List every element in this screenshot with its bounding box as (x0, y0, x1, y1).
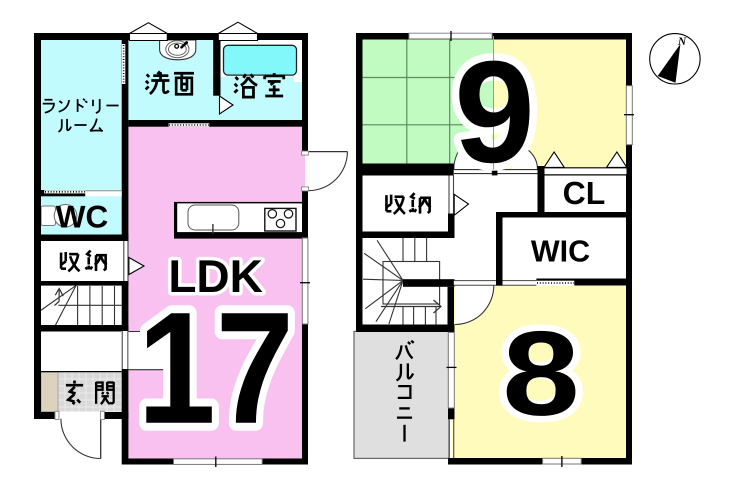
svg-text:WC: WC (56, 198, 108, 234)
svg-text:17: 17 (137, 279, 294, 457)
svg-text:9: 9 (454, 31, 535, 193)
svg-text:N: N (677, 36, 687, 48)
svg-text:WIC: WIC (531, 235, 590, 269)
svg-text:CL: CL (563, 175, 606, 211)
svg-text:8: 8 (502, 307, 579, 441)
